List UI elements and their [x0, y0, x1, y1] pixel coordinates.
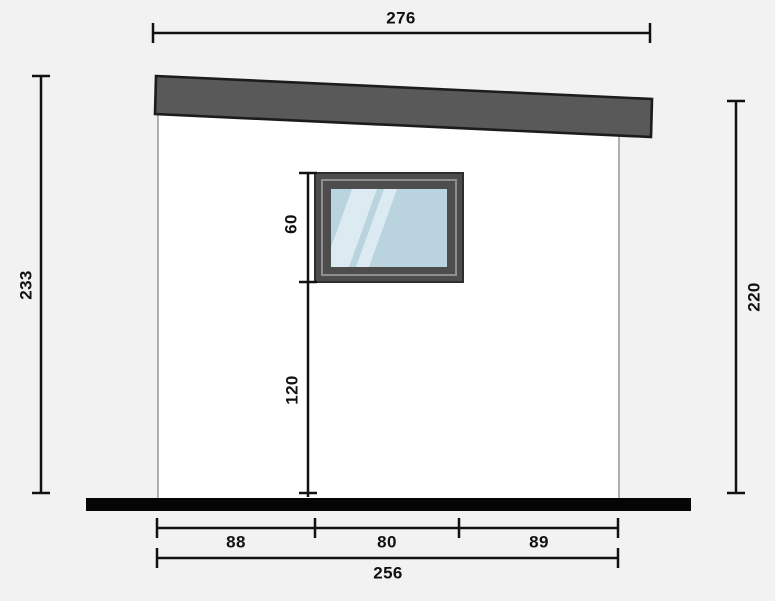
elevation-geometry: [0, 0, 775, 601]
dim-label-ground-total: 256: [373, 565, 403, 582]
building-walls: [158, 113, 619, 499]
ground-line: [86, 498, 691, 511]
dim-label-height-right: 220: [746, 282, 763, 312]
window: [315, 173, 463, 282]
dim-label-ground-right: 89: [529, 534, 549, 551]
shed-elevation-drawing: 276 233 220 60 120 88 80 89 256: [0, 0, 775, 601]
dim-label-window-sill: 120: [284, 375, 301, 405]
dim-label-height-left: 233: [18, 270, 35, 300]
dim-label-window-height: 60: [283, 214, 300, 234]
dim-label-ground-left: 88: [226, 534, 246, 551]
dim-label-roof-width: 276: [386, 10, 416, 27]
dim-label-ground-middle: 80: [377, 534, 397, 551]
dim-line-height-right: [727, 101, 745, 493]
